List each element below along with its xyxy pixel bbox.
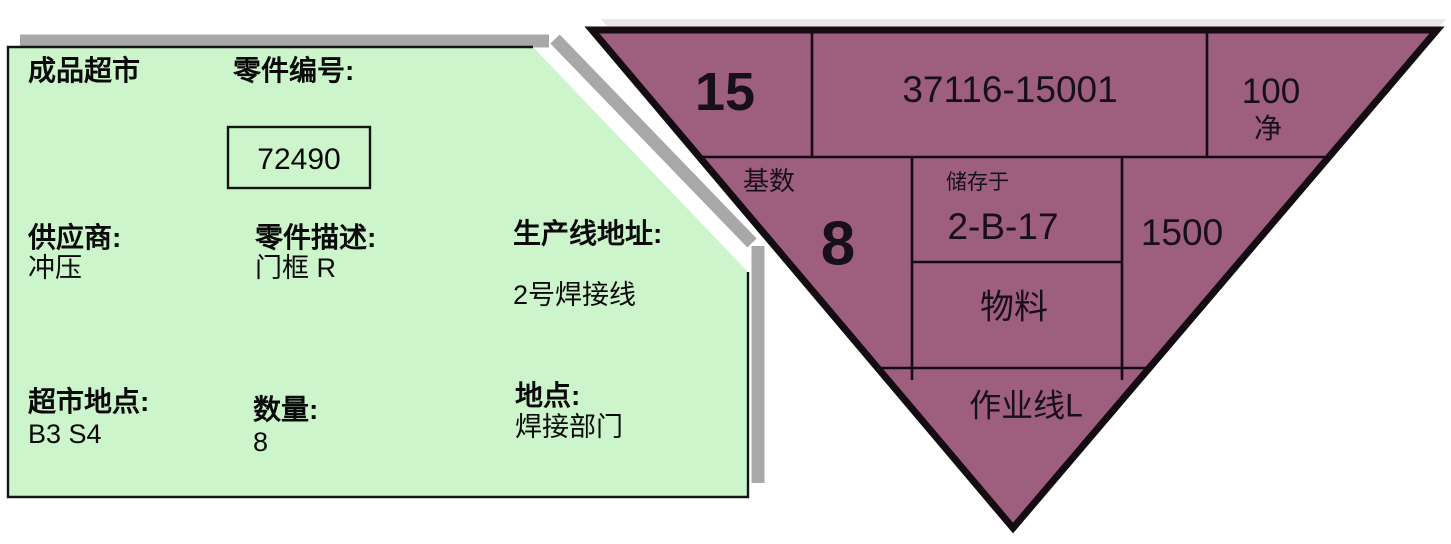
- part-number-value: 72490: [257, 144, 340, 176]
- part-description-value: 门框 R: [255, 254, 336, 283]
- supplier-label: 供应商:: [28, 223, 121, 253]
- line-address-label: 生产线地址:: [513, 219, 665, 248]
- card-title: 成品超市: [28, 56, 140, 86]
- triangle-batch-quantity: 1500: [1141, 213, 1223, 253]
- triangle-pack-quantity: 100: [1242, 73, 1300, 111]
- triangle-trigger-number: 15: [695, 63, 755, 121]
- triangle-part-number: 37116-15001: [902, 70, 1117, 110]
- market-location-label: 超市地点:: [28, 387, 149, 417]
- quantity-label: 数量:: [253, 395, 318, 425]
- triangle-base-label: 基数: [743, 167, 795, 195]
- market-location-value: B3 S4: [28, 420, 102, 449]
- part-description-label: 零件描述:: [255, 223, 376, 253]
- kanban-slide: 成品超市 零件编号: 72490 供应商: 冲压 零件描述: 门框 R 生产线地…: [0, 0, 1451, 544]
- line-address-value: 2号焊接线: [513, 281, 636, 310]
- location-value: 焊接部门: [515, 413, 623, 442]
- triangle-work-line: 作业线L: [969, 389, 1083, 424]
- location-label: 地点:: [515, 381, 580, 411]
- triangle-base-quantity: 8: [821, 212, 855, 279]
- quantity-value: 8: [253, 428, 268, 457]
- triangle-net-label: 净: [1254, 114, 1282, 144]
- supplier-value: 冲压: [28, 254, 82, 283]
- triangle-material-label: 物料: [980, 290, 1048, 327]
- triangle-store-location: 2-B-17: [947, 207, 1058, 247]
- part-number-label: 零件编号:: [233, 56, 354, 86]
- card-shape: [8, 47, 748, 497]
- triangle-store-at-label: 储存于: [946, 172, 1009, 195]
